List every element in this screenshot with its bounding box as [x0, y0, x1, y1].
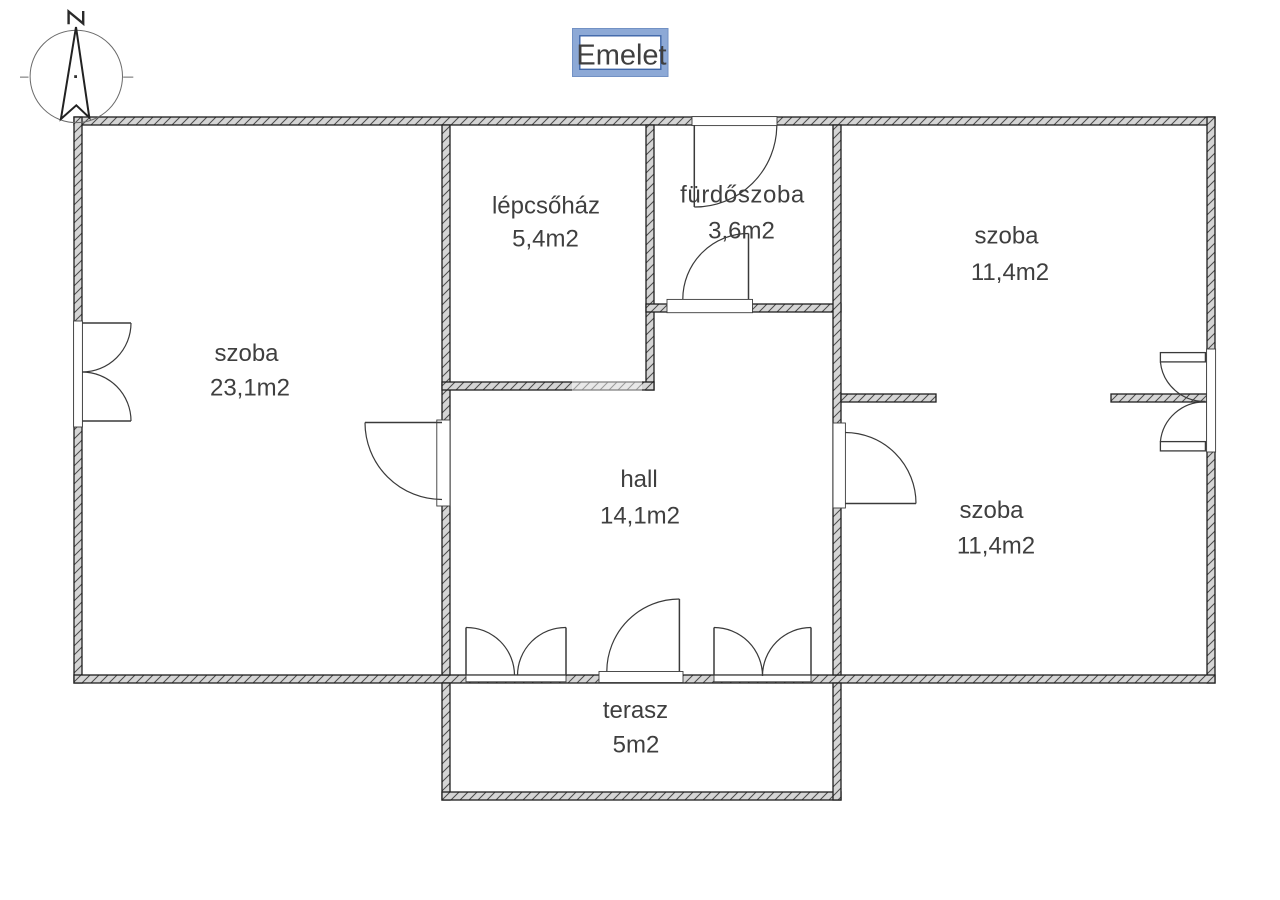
svg-text:23,1m2: 23,1m2	[210, 375, 290, 402]
svg-text:5,4m2: 5,4m2	[512, 226, 579, 253]
svg-text:11,4m2: 11,4m2	[971, 259, 1049, 286]
svg-text:hall: hall	[620, 466, 657, 493]
svg-text:lépcsőház: lépcsőház	[492, 193, 600, 220]
svg-text:14,1m2: 14,1m2	[600, 503, 680, 530]
svg-text:5m2: 5m2	[613, 732, 660, 759]
svg-text:terasz: terasz	[603, 697, 668, 724]
svg-text:szoba: szoba	[974, 223, 1039, 250]
svg-text:szoba: szoba	[959, 497, 1024, 524]
svg-text:fürdőszoba: fürdőszoba	[680, 182, 805, 209]
svg-text:11,4m2: 11,4m2	[957, 533, 1035, 560]
svg-text:3,6m2: 3,6m2	[708, 218, 775, 245]
svg-text:Emelet: Emelet	[576, 40, 666, 72]
svg-text:szoba: szoba	[214, 340, 279, 367]
